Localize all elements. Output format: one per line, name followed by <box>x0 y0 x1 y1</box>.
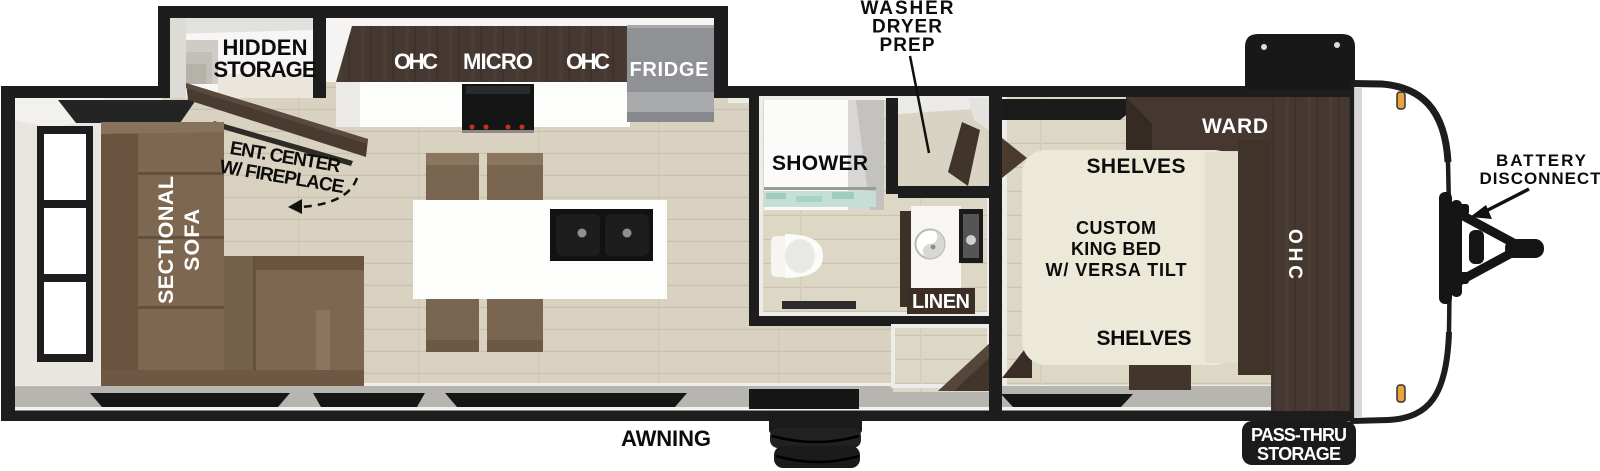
svg-text:AWNING: AWNING <box>621 426 711 451</box>
svg-text:OHC: OHC <box>566 49 610 74</box>
svg-text:SHOWER: SHOWER <box>772 152 868 175</box>
svg-text:PREP: PREP <box>880 35 935 56</box>
svg-text:OHC: OHC <box>1284 229 1305 279</box>
svg-text:PASS-THRU: PASS-THRU <box>1251 425 1347 445</box>
svg-text:DISCONNECT: DISCONNECT <box>1480 169 1600 188</box>
svg-text:MICRO: MICRO <box>463 49 533 74</box>
svg-text:KING BED: KING BED <box>1071 239 1161 259</box>
svg-text:FRIDGE: FRIDGE <box>630 59 709 81</box>
svg-text:OHC: OHC <box>394 49 438 74</box>
svg-text:W/ VERSA TILT: W/ VERSA TILT <box>1046 260 1187 280</box>
svg-text:LINEN: LINEN <box>912 291 970 313</box>
svg-text:STORAGE: STORAGE <box>1257 444 1341 464</box>
svg-text:SOFA: SOFA <box>180 209 204 271</box>
svg-text:SECTIONAL: SECTIONAL <box>154 176 178 304</box>
svg-text:SHELVES: SHELVES <box>1097 327 1192 350</box>
svg-text:SHELVES: SHELVES <box>1087 155 1186 178</box>
svg-text:CUSTOM: CUSTOM <box>1076 218 1156 238</box>
svg-text:STORAGE: STORAGE <box>214 57 317 82</box>
svg-text:WARD: WARD <box>1202 115 1268 138</box>
